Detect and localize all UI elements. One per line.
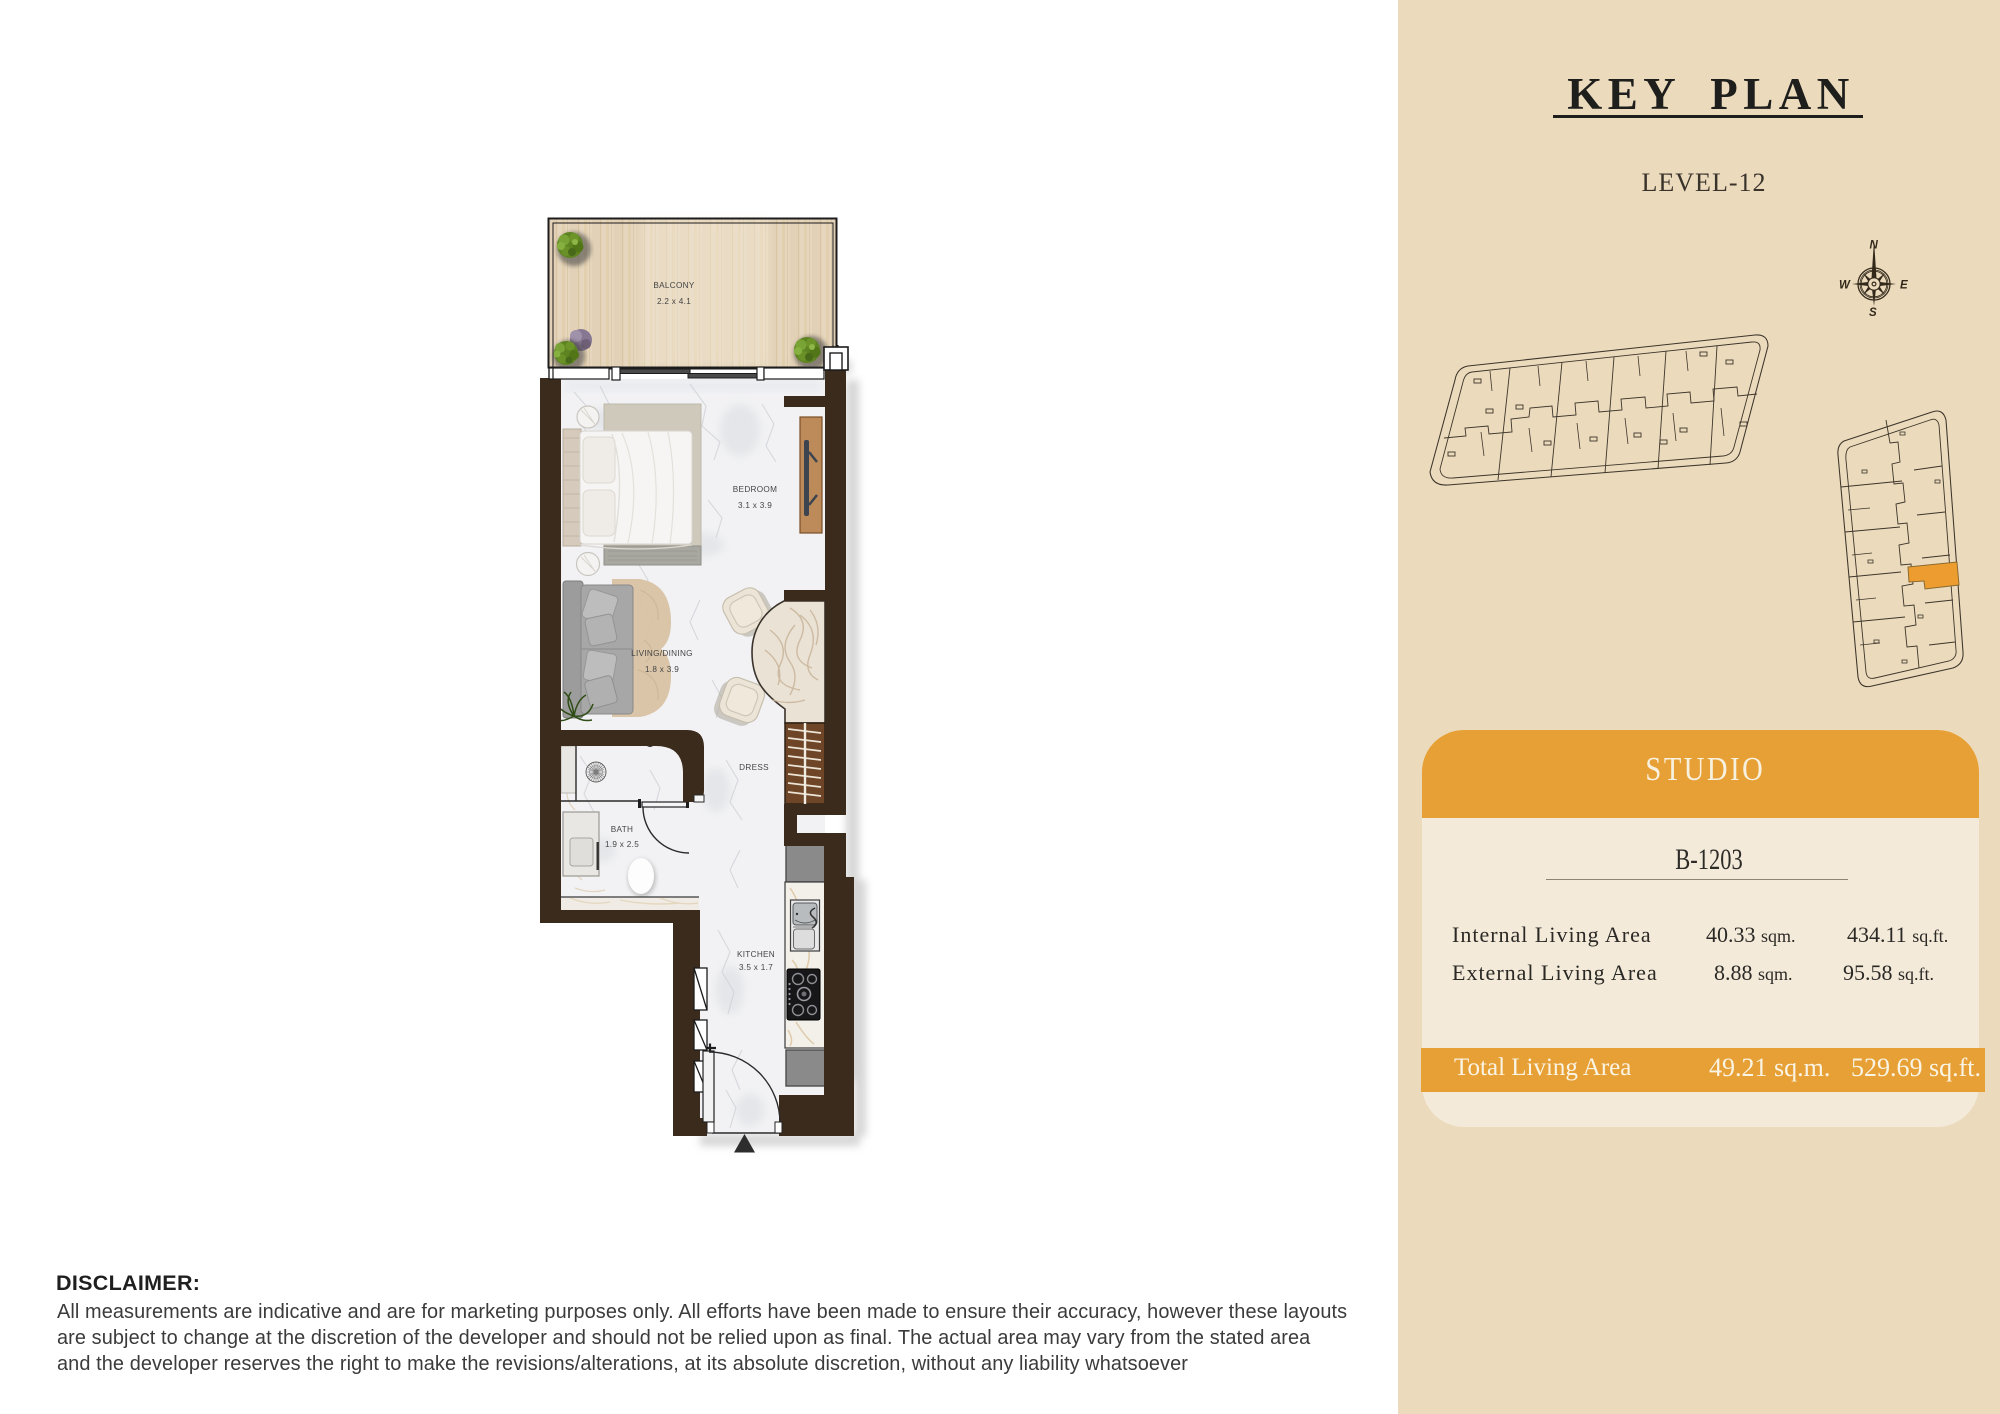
svg-text:LIVING/DINING: LIVING/DINING	[631, 649, 693, 658]
svg-text:S: S	[1869, 307, 1877, 319]
svg-text:BEDROOM: BEDROOM	[733, 485, 777, 494]
svg-text:1.8 x 3.9: 1.8 x 3.9	[645, 665, 679, 674]
svg-text:E: E	[1900, 280, 1908, 292]
svg-text:N: N	[1870, 240, 1879, 252]
svg-text:KITCHEN: KITCHEN	[737, 950, 775, 959]
svg-text:DRESS: DRESS	[739, 763, 769, 772]
svg-text:BALCONY: BALCONY	[653, 281, 694, 290]
svg-text:3.5 x 1.7: 3.5 x 1.7	[739, 963, 773, 972]
svg-text:1.9 x 2.5: 1.9 x 2.5	[605, 840, 639, 849]
svg-text:2.2 x 4.1: 2.2 x 4.1	[657, 297, 691, 306]
svg-text:W: W	[1839, 280, 1851, 292]
svg-text:3.1 x 3.9: 3.1 x 3.9	[738, 501, 772, 510]
svg-text:BATH: BATH	[611, 825, 633, 834]
